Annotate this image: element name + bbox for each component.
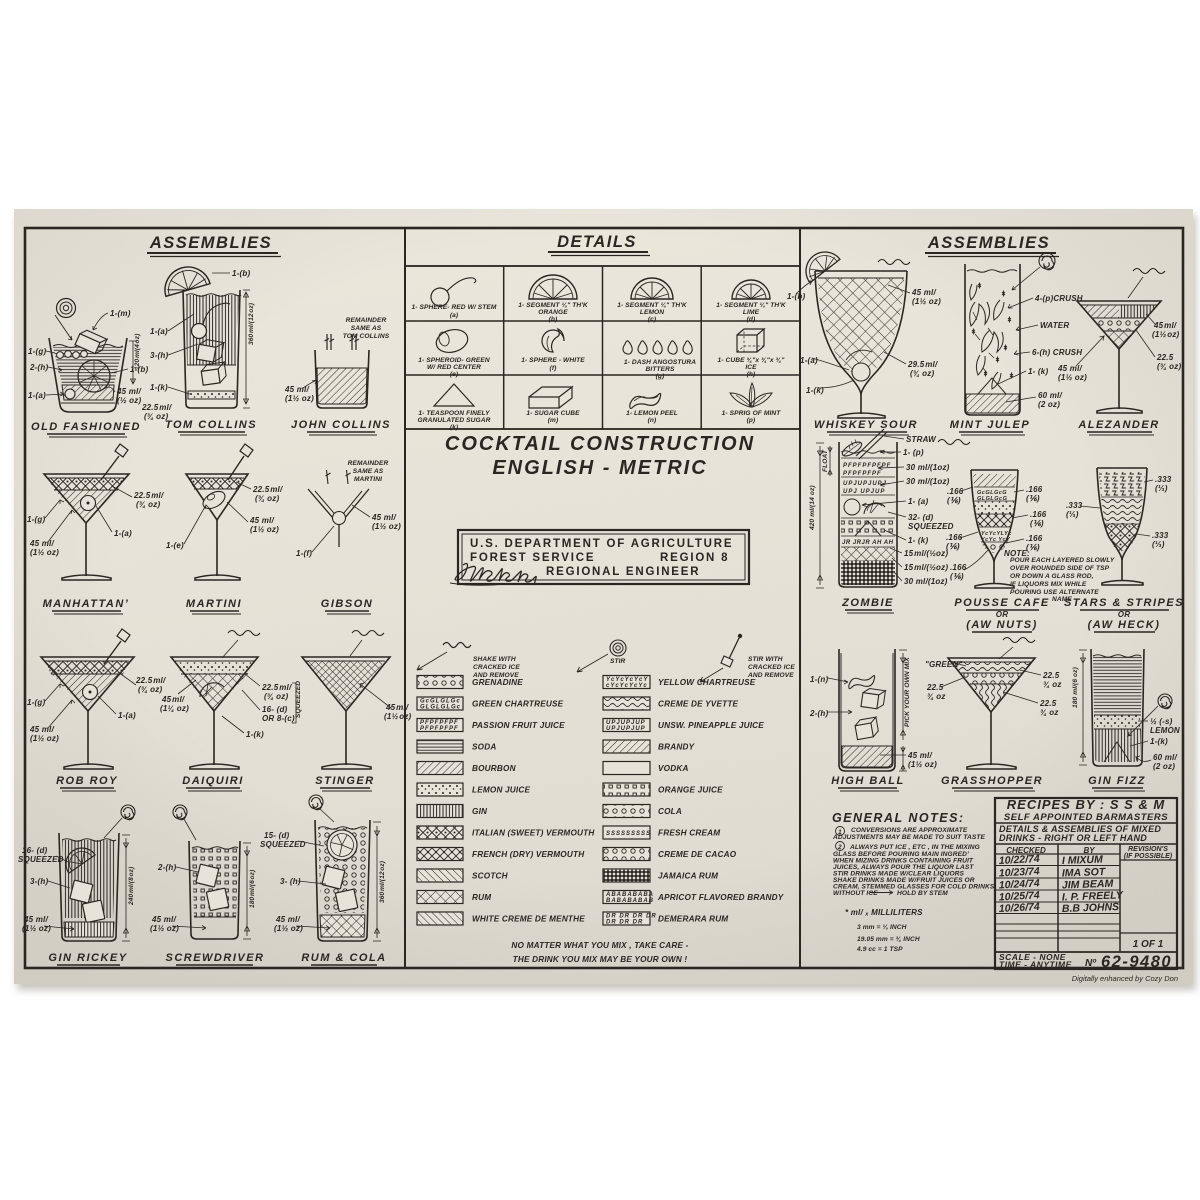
svg-text:(IF POSSIBLE): (IF POSSIBLE)	[1124, 853, 1173, 860]
svg-text:B.B JOHNS: B.B JOHNS	[1062, 901, 1120, 915]
svg-text:RUM & COLA: RUM & COLA	[301, 952, 386, 964]
svg-text:SQUEEZED: SQUEEZED	[295, 681, 302, 718]
svg-text:MINT JULEP: MINT JULEP	[950, 419, 1030, 431]
svg-text:UPJUPJUPJ: UPJUPJUPJ	[843, 481, 887, 487]
svg-text:19.05 mm = ¾ INCH: 19.05 mm = ¾ INCH	[857, 936, 920, 943]
svg-text:1-(g): 1-(g)	[28, 347, 46, 356]
svg-text:.333: .333	[1152, 531, 1169, 540]
svg-text:(¾ oz): (¾ oz)	[136, 500, 160, 509]
svg-text:22.5: 22.5	[1156, 353, 1174, 362]
svg-text:ASSEMBLIES: ASSEMBLIES	[927, 234, 1050, 252]
svg-text:(e): (e)	[450, 371, 458, 378]
svg-text:1- (k): 1- (k)	[908, 536, 928, 545]
svg-text:ITALIAN (SWEET) VERMOUTH: ITALIAN (SWEET) VERMOUTH	[472, 829, 595, 838]
svg-text:(n): (n)	[648, 417, 657, 424]
svg-text:(1½ oz): (1½ oz)	[1058, 373, 1087, 382]
svg-text:OR DOWN A GLASS ROD,: OR DOWN A GLASS ROD,	[1010, 573, 1094, 580]
svg-text:Digitally enhanced by Cozy Don: Digitally enhanced by Cozy Don	[1072, 974, 1178, 983]
svg-text:MARTINI: MARTINI	[354, 476, 382, 483]
svg-text:4.9 cc = 1 TSP: 4.9 cc = 1 TSP	[856, 946, 903, 953]
svg-text:REVISION'S: REVISION'S	[1128, 846, 1168, 853]
svg-text:(⅙): (⅙)	[1030, 519, 1044, 528]
svg-text:YELLOW CHARTREUSE: YELLOW CHARTREUSE	[658, 678, 756, 687]
svg-text:(AW HECK): (AW HECK)	[1088, 619, 1161, 631]
svg-text:U.S. DEPARTMENT OF AGRICULTURE: U.S. DEPARTMENT OF AGRICULTURE	[470, 538, 733, 550]
svg-text:(b): (b)	[549, 316, 558, 323]
svg-text:1- (a): 1- (a)	[908, 497, 928, 506]
svg-text:(1½ oz): (1½ oz)	[274, 924, 303, 933]
svg-text:.333: .333	[1155, 475, 1172, 484]
svg-text:240 ml/(8 oz): 240 ml/(8 oz)	[128, 867, 135, 906]
svg-text:(2 oz): (2 oz)	[1153, 762, 1175, 771]
svg-text:(1½ oz): (1½ oz)	[30, 734, 59, 743]
svg-text:LEMON: LEMON	[640, 309, 664, 316]
svg-text:1-(a): 1-(a)	[118, 711, 136, 720]
svg-text:(c): (c)	[648, 316, 656, 323]
svg-text:22.5 ml/: 22.5 ml/	[133, 491, 164, 500]
svg-text:REGION 8: REGION 8	[660, 552, 729, 564]
svg-text:ASSEMBLIES: ASSEMBLIES	[149, 234, 272, 252]
svg-text:SAME AS: SAME AS	[353, 468, 384, 475]
svg-text:WHITE CREME DE MENTHE: WHITE CREME DE MENTHE	[472, 915, 585, 924]
svg-text:(¾ oz): (¾ oz)	[138, 685, 162, 694]
svg-text:.166: .166	[1026, 485, 1043, 494]
svg-text:ICE: ICE	[745, 364, 757, 371]
svg-text:STIR WITH: STIR WITH	[748, 656, 783, 663]
svg-text:(2 oz): (2 oz)	[1038, 400, 1060, 409]
svg-text:CREME DE CACAO: CREME DE CACAO	[658, 850, 737, 859]
svg-text:45 ml/: 45 ml/	[1153, 321, 1177, 330]
svg-text:1-(k): 1-(k)	[806, 386, 824, 395]
svg-text:1 OF 1: 1 OF 1	[1133, 939, 1164, 950]
svg-text:REMAINDER: REMAINDER	[348, 460, 389, 467]
svg-text:TOM COLLINS: TOM COLLINS	[165, 419, 257, 431]
svg-text:.333: .333	[1066, 501, 1083, 510]
svg-text:GIN RICKEY: GIN RICKEY	[48, 952, 127, 964]
svg-text:IF LIQUORS MIX WHILE: IF LIQUORS MIX WHILE	[1010, 581, 1087, 588]
svg-text:JAMAICA RUM: JAMAICA RUM	[658, 872, 718, 881]
svg-text:VODKA: VODKA	[658, 764, 689, 773]
svg-text:OLD FASHIONED: OLD FASHIONED	[31, 421, 141, 433]
svg-text:1-(b): 1-(b)	[232, 269, 250, 278]
svg-text:UNSW. PINEAPPLE JUICE: UNSW. PINEAPPLE JUICE	[658, 721, 764, 730]
svg-text:"GREEN": "GREEN"	[925, 660, 962, 669]
svg-text:1- CUBE ¾"x ¾"x ¾": 1- CUBE ¾"x ¾"x ¾"	[718, 357, 786, 364]
svg-text:HIGH BALL: HIGH BALL	[831, 775, 904, 787]
svg-text:GIN: GIN	[472, 807, 488, 816]
svg-text:SHAKE WITH: SHAKE WITH	[473, 656, 516, 663]
svg-text:UPJUPJUP: UPJUPJUP	[606, 726, 646, 732]
svg-text:GREEN CHARTREUSE: GREEN CHARTREUSE	[472, 700, 564, 709]
svg-text:(¾ oz): (¾ oz)	[255, 494, 279, 503]
svg-text:STIR: STIR	[610, 658, 626, 665]
svg-text:(g): (g)	[656, 373, 665, 380]
svg-text:(k): (k)	[450, 424, 458, 431]
svg-text:ROB ROY: ROB ROY	[56, 775, 118, 787]
svg-text:1- SEGMENT ⅛" TH'K: 1- SEGMENT ⅛" TH'K	[716, 302, 787, 309]
svg-text:ORANGE: ORANGE	[538, 309, 568, 316]
svg-text:45 ml/: 45 ml/	[23, 915, 48, 924]
svg-text:(⅙): (⅙)	[1026, 494, 1040, 503]
svg-text:TIME - ANYTIME: TIME - ANYTIME	[999, 960, 1072, 970]
svg-text:(1½ oz): (1½ oz)	[912, 297, 941, 306]
svg-text:45 ml/: 45 ml/	[907, 751, 932, 760]
svg-text:30 ml/(1oz): 30 ml/(1oz)	[906, 463, 950, 472]
svg-text:180 ml/(6 oz): 180 ml/(6 oz)	[249, 870, 256, 908]
svg-text:45 ml/: 45 ml/	[385, 703, 409, 712]
svg-text:(1½ oz): (1½ oz)	[250, 525, 279, 534]
svg-text:1- (p): 1- (p)	[903, 448, 924, 457]
svg-text:1- SPHERE- RED W/ STEM: 1- SPHERE- RED W/ STEM	[412, 304, 497, 311]
svg-text:(1½ oz): (1½ oz)	[285, 394, 314, 403]
svg-text:2: 2	[837, 844, 842, 851]
svg-text:FRESH CREAM: FRESH CREAM	[658, 829, 720, 838]
svg-text:3- (h): 3- (h)	[280, 877, 301, 886]
svg-text:(d): (d)	[747, 316, 756, 323]
svg-text:(a): (a)	[450, 312, 458, 319]
svg-text:1- SEGMENT ⅛" TH'K: 1- SEGMENT ⅛" TH'K	[518, 302, 589, 309]
svg-text:1- SPHEROID- GREEN: 1- SPHEROID- GREEN	[418, 357, 490, 364]
svg-text:(1½ oz): (1½ oz)	[1152, 330, 1180, 339]
svg-text:1-(a): 1-(a)	[150, 327, 168, 336]
svg-text:(1½ oz): (1½ oz)	[384, 712, 412, 721]
svg-text:* ml/ ₓ MILLILITERS: * ml/ ₓ MILLILITERS	[845, 908, 923, 917]
svg-text:22.5: 22.5	[1042, 671, 1060, 680]
svg-text:1- LEMON PEEL: 1- LEMON PEEL	[626, 410, 678, 417]
svg-text:30 ml/(1oz): 30 ml/(1oz)	[906, 477, 950, 486]
svg-text:420 ml/(14 oz): 420 ml/(14 oz)	[809, 485, 816, 531]
svg-text:(¾ oz): (¾ oz)	[1157, 362, 1181, 371]
svg-text:10/26/74: 10/26/74	[999, 901, 1041, 915]
svg-text:(p): (p)	[747, 417, 756, 424]
svg-text:LEMON JUICE: LEMON JUICE	[472, 786, 530, 795]
svg-text:HOLD BY STEM: HOLD BY STEM	[897, 890, 948, 897]
svg-text:DRINKS - RIGHT OR LEFT HAND: DRINKS - RIGHT OR LEFT HAND	[999, 833, 1147, 843]
svg-text:STRAW: STRAW	[906, 435, 937, 444]
svg-text:(1½ oz): (1½ oz)	[908, 760, 937, 769]
svg-text:WITHOUT ICE: WITHOUT ICE	[833, 890, 878, 897]
svg-text:1- SUGAR CUBE: 1- SUGAR CUBE	[526, 410, 580, 417]
svg-text:APRICOT FLAVORED BRANDY: APRICOT FLAVORED BRANDY	[657, 893, 785, 902]
svg-text:cYcYcYcYc: cYcYcYcYc	[606, 683, 648, 689]
svg-text:.166: .166	[947, 487, 964, 496]
svg-text:1- SPRIG OF MINT: 1- SPRIG OF MINT	[722, 410, 782, 417]
svg-text:GRENADINE: GRENADINE	[472, 678, 523, 687]
svg-text:15 ml/(½oz): 15 ml/(½oz)	[904, 563, 948, 572]
svg-text:22.5 ml/: 22.5 ml/	[135, 676, 166, 685]
svg-text:60 ml/: 60 ml/	[1038, 391, 1062, 400]
svg-text:SELF APPOINTED BARMASTERS: SELF APPOINTED BARMASTERS	[1004, 812, 1168, 823]
svg-text:(⅙): (⅙)	[950, 572, 964, 581]
svg-text:(½ oz): (½ oz)	[117, 396, 141, 405]
svg-text:.166: .166	[1026, 534, 1043, 543]
svg-text:1- DASH ANGOSTURA: 1- DASH ANGOSTURA	[624, 359, 696, 366]
svg-text:1-(g): 1-(g)	[27, 515, 45, 524]
svg-text:45 ml/: 45 ml/	[371, 513, 396, 522]
svg-text:1- SEGMENT ⅛" TH'K: 1- SEGMENT ⅛" TH'K	[617, 302, 688, 309]
svg-text:GENERAL NOTES:: GENERAL NOTES:	[832, 811, 965, 825]
svg-text:1- (k): 1- (k)	[1028, 367, 1048, 376]
svg-text:W/ RED CENTER: W/ RED CENTER	[427, 364, 481, 371]
svg-text:32- (d): 32- (d)	[908, 513, 934, 522]
svg-text:(1¼ oz): (1¼ oz)	[160, 704, 189, 713]
svg-text:WHISKEY SOUR: WHISKEY SOUR	[814, 419, 918, 431]
svg-text:ALEZANDER: ALEZANDER	[1077, 419, 1159, 431]
svg-text:GRANULATED SUGAR: GRANULATED SUGAR	[418, 417, 491, 424]
svg-text:(1½ oz): (1½ oz)	[22, 924, 51, 933]
svg-text:OR 8-(c): OR 8-(c)	[262, 714, 295, 723]
svg-text:LIME: LIME	[743, 309, 760, 316]
svg-text:ALWAYS PUT ICE , ETC , IN THE: ALWAYS PUT ICE , ETC , IN THE MIXING	[849, 844, 980, 851]
svg-text:1- SPHERE - WHITE: 1- SPHERE - WHITE	[521, 357, 585, 364]
svg-text:(AW NUTS): (AW NUTS)	[966, 619, 1038, 631]
svg-text:SQUEEZED: SQUEEZED	[908, 522, 954, 531]
svg-text:PFPFPFPF: PFPFPFPF	[420, 726, 459, 732]
svg-text:62-9480: 62-9480	[1101, 953, 1172, 971]
svg-text:BOURBON: BOURBON	[472, 764, 517, 773]
svg-text:CREME DE YVETTE: CREME DE YVETTE	[658, 700, 739, 709]
svg-text:(⅓): (⅓)	[1066, 510, 1079, 519]
svg-text:16- (d): 16- (d)	[262, 705, 288, 714]
svg-text:BABABABAB: BABABABAB	[606, 898, 654, 904]
svg-text:GRASSHOPPER: GRASSHOPPER	[941, 775, 1043, 787]
svg-text:STINGER: STINGER	[315, 775, 374, 787]
svg-text:22.5 ml/: 22.5 ml/	[261, 683, 292, 692]
svg-text:POUR EACH LAYERED SLOWLY: POUR EACH LAYERED SLOWLY	[1010, 557, 1115, 564]
svg-text:JR JRJR AH AH: JR JRJR AH AH	[842, 540, 894, 546]
svg-text:CRACKED ICE: CRACKED ICE	[473, 664, 520, 671]
svg-text:360 ml/(12 oz): 360 ml/(12 oz)	[248, 303, 255, 345]
svg-text:MARTINI: MARTINI	[186, 598, 242, 610]
svg-text:I MIXUM: I MIXUM	[1062, 854, 1103, 867]
svg-text:CONVERSIONS ARE APPROXIMATE: CONVERSIONS ARE APPROXIMATE	[851, 827, 968, 834]
svg-text:2-(h): 2-(h)	[157, 863, 176, 872]
svg-text:COCKTAIL CONSTRUCTION: COCKTAIL CONSTRUCTION	[445, 433, 755, 455]
svg-text:½ (-s): ½ (-s)	[1150, 717, 1173, 726]
svg-text:SAME AS: SAME AS	[351, 325, 382, 332]
svg-text:1-(k): 1-(k)	[1150, 737, 1168, 746]
svg-text:CRACKED ICE: CRACKED ICE	[748, 664, 795, 671]
svg-text:120 ml(4 oz): 120 ml(4 oz)	[134, 334, 141, 370]
svg-text:SCREWDRIVER: SCREWDRIVER	[165, 952, 264, 964]
svg-text:BRANDY: BRANDY	[658, 743, 696, 752]
svg-text:PASSION FRUIT JUICE: PASSION FRUIT JUICE	[472, 721, 565, 730]
svg-text:(⅙): (⅙)	[946, 542, 960, 551]
svg-text:NO MATTER WHAT YOU MIX , TAKE: NO MATTER WHAT YOU MIX , TAKE CARE -	[511, 941, 688, 950]
svg-text:DR DR DR: DR DR DR	[606, 920, 643, 926]
svg-text:1-(k): 1-(k)	[150, 383, 168, 392]
svg-text:SODA: SODA	[472, 743, 496, 752]
svg-text:UPJ UPJUP: UPJ UPJUP	[843, 489, 885, 495]
svg-text:29.5 ml/: 29.5 ml/	[907, 360, 938, 369]
svg-text:FLOAT: FLOAT	[822, 449, 829, 472]
svg-text:1-(m): 1-(m)	[110, 309, 131, 318]
svg-text:2-(h): 2-(h)	[29, 363, 48, 372]
svg-text:(¾ oz): (¾ oz)	[264, 692, 288, 701]
svg-text:45 ml/: 45 ml/	[116, 387, 141, 396]
svg-text:POURING USE ALTERNATE: POURING USE ALTERNATE	[1010, 589, 1099, 596]
svg-text:45 ml/: 45 ml/	[275, 915, 300, 924]
svg-text:3-(h): 3-(h)	[150, 351, 168, 360]
svg-text:ADJUSTMENTS MAY BE MADE TO SUI: ADJUSTMENTS MAY BE MADE TO SUIT TASTE	[832, 834, 985, 841]
svg-text:FRENCH (DRY) VERMOUTH: FRENCH (DRY) VERMOUTH	[472, 850, 585, 859]
svg-text:SSSSSSSSS: SSSSSSSSS	[606, 831, 651, 837]
svg-text:(1½ oz): (1½ oz)	[150, 924, 179, 933]
svg-text:45 ml/: 45 ml/	[1057, 364, 1082, 373]
svg-text:1-(a): 1-(a)	[800, 356, 818, 365]
svg-text:(⅓): (⅓)	[1152, 540, 1165, 549]
svg-text:PICK YOUR OWN MIX: PICK YOUR OWN MIX	[904, 657, 911, 727]
svg-text:360 ml/(12 oz): 360 ml/(12 oz)	[379, 861, 386, 903]
svg-text:THE DRINK YOU MIX MAY BE YOUR: THE DRINK YOU MIX MAY BE YOUR OWN !	[513, 955, 688, 964]
svg-text:ENGLISH - METRIC: ENGLISH - METRIC	[492, 457, 707, 479]
svg-text:1- TEASPOON FINELY: 1- TEASPOON FINELY	[418, 410, 490, 417]
svg-text:BITTERS: BITTERS	[646, 366, 675, 373]
svg-text:DETAILS: DETAILS	[557, 233, 637, 251]
svg-text:(1½ oz): (1½ oz)	[372, 522, 401, 531]
svg-text:DAIQUIRI: DAIQUIRI	[182, 775, 244, 787]
svg-text:Nº: Nº	[1085, 958, 1097, 969]
svg-text:1-(e): 1-(e)	[166, 541, 184, 550]
svg-text:1-(a): 1-(a)	[28, 391, 46, 400]
svg-text:(1½ oz): (1½ oz)	[30, 548, 59, 557]
svg-text:FOREST SERVICE: FOREST SERVICE	[470, 552, 595, 564]
svg-text:30 ml/(1oz): 30 ml/(1oz)	[904, 577, 948, 586]
svg-text:GIN FIZZ: GIN FIZZ	[1088, 775, 1146, 787]
svg-text:STARS & STRIPES: STARS & STRIPES	[1064, 597, 1184, 609]
svg-text:45 ml/: 45 ml/	[911, 288, 936, 297]
svg-text:REMAINDER: REMAINDER	[346, 317, 387, 324]
svg-text:OR: OR	[1118, 610, 1130, 619]
svg-text:1-(a): 1-(a)	[114, 529, 132, 538]
svg-text:OR: OR	[996, 610, 1008, 619]
svg-text:SCOTCH: SCOTCH	[472, 872, 509, 881]
svg-text:RECIPES BY : S S & M: RECIPES BY : S S & M	[1007, 797, 1166, 812]
svg-text:15- (d): 15- (d)	[264, 831, 290, 840]
svg-text:3 mm = ⅛ INCH: 3 mm = ⅛ INCH	[857, 924, 907, 931]
svg-text:22.5: 22.5	[926, 683, 944, 692]
svg-text:TOM COLLINS: TOM COLLINS	[343, 333, 390, 340]
svg-text:(⅓): (⅓)	[1155, 484, 1168, 493]
svg-text:LEMON: LEMON	[1150, 726, 1180, 735]
svg-text:JOHN COLLINS: JOHN COLLINS	[291, 419, 391, 431]
svg-text:1-(n): 1-(n)	[810, 675, 828, 684]
svg-text:GIBSON: GIBSON	[321, 598, 373, 610]
svg-text:1-(g): 1-(g)	[27, 698, 45, 707]
svg-text:(f): (f)	[550, 365, 557, 372]
svg-text:1-(k): 1-(k)	[246, 730, 264, 739]
svg-text:.166: .166	[946, 533, 963, 542]
svg-text:15 ml/(½oz): 15 ml/(½oz)	[904, 549, 948, 558]
svg-text:POUSSE CAFE: POUSSE CAFE	[954, 597, 1049, 609]
svg-text:(m): (m)	[548, 417, 559, 424]
svg-text:¾ oz: ¾ oz	[927, 692, 946, 701]
svg-text:PFPFPFPF: PFPFPFPF	[843, 471, 882, 477]
svg-text:4-(p)CRUSH: 4-(p)CRUSH	[1034, 294, 1083, 303]
svg-text:22.5 ml/: 22.5 ml/	[252, 485, 283, 494]
svg-text:3-(h): 3-(h)	[30, 877, 48, 886]
svg-text:45 ml/: 45 ml/	[151, 915, 176, 924]
svg-text:OVER ROUNDED SIDE OF TSP: OVER ROUNDED SIDE OF TSP	[1010, 565, 1110, 572]
svg-text:45 ml/: 45 ml/	[249, 516, 274, 525]
svg-text:DEMERARA RUM: DEMERARA RUM	[658, 915, 728, 924]
svg-text:ZOMBIE: ZOMBIE	[841, 597, 894, 609]
svg-text:45 ml/: 45 ml/	[161, 695, 185, 704]
svg-text:22.5 ml/: 22.5 ml/	[141, 403, 172, 412]
svg-text:(¾ oz): (¾ oz)	[910, 369, 934, 378]
svg-text:RUM: RUM	[472, 893, 491, 902]
svg-text:(h): (h)	[747, 371, 756, 378]
svg-text:16- (d): 16- (d)	[22, 846, 48, 855]
svg-text:COLA: COLA	[658, 807, 682, 816]
svg-text:6-(h) CRUSH: 6-(h) CRUSH	[1032, 348, 1082, 357]
svg-text:60 ml/: 60 ml/	[1153, 753, 1177, 762]
svg-text:¾ oz: ¾ oz	[1040, 708, 1059, 717]
svg-text:REGIONAL ENGINEER: REGIONAL ENGINEER	[546, 566, 700, 578]
svg-text:ORANGE JUICE: ORANGE JUICE	[658, 786, 723, 795]
svg-text:¾ oz: ¾ oz	[1043, 680, 1062, 689]
svg-text:.166: .166	[950, 563, 967, 572]
svg-text:180 ml/(6 oz): 180 ml/(6 oz)	[1072, 667, 1079, 708]
svg-text:45 ml/: 45 ml/	[29, 539, 54, 548]
svg-text:MANHATTAN’: MANHATTAN’	[43, 598, 130, 610]
svg-text:22.5: 22.5	[1039, 699, 1057, 708]
svg-text:.166: .166	[1030, 510, 1047, 519]
svg-text:(⅙): (⅙)	[947, 496, 961, 505]
svg-text:2-(h): 2-(h)	[809, 709, 828, 718]
svg-text:45 ml/: 45 ml/	[29, 725, 54, 734]
svg-text:WATER: WATER	[1040, 321, 1069, 330]
svg-text:1-(f): 1-(f)	[296, 549, 312, 558]
svg-text:GLGLGLGc: GLGLGLGc	[420, 705, 461, 711]
